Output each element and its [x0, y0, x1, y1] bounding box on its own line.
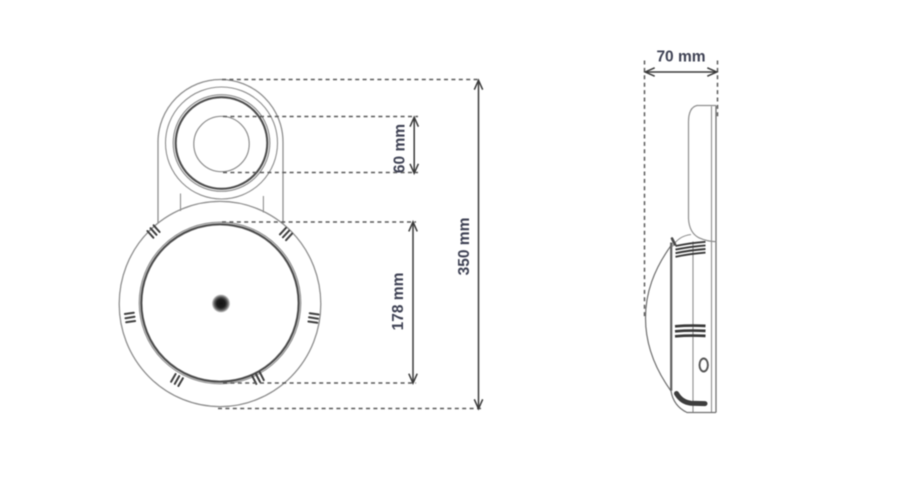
- svg-text:70 mm: 70 mm: [656, 49, 705, 66]
- svg-text:60 mm: 60 mm: [392, 124, 409, 173]
- svg-text:350 mm: 350 mm: [456, 218, 473, 276]
- svg-text:178 mm: 178 mm: [390, 273, 407, 331]
